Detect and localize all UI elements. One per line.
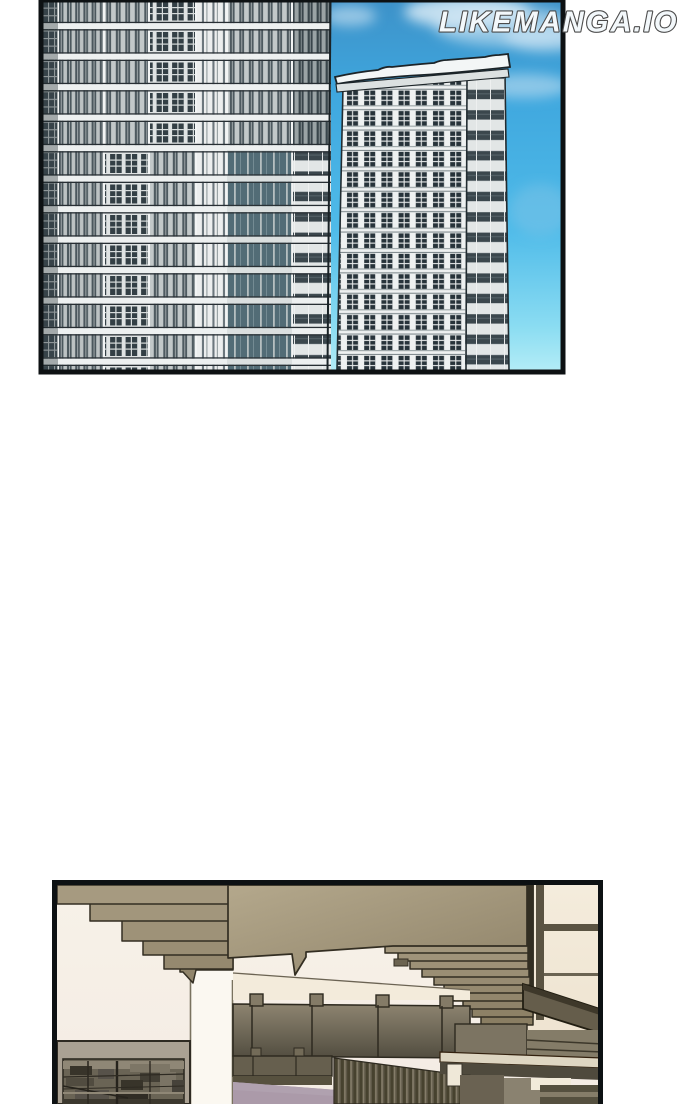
svg-text:LIKEMANGA.IO: LIKEMANGA.IO (439, 7, 678, 39)
